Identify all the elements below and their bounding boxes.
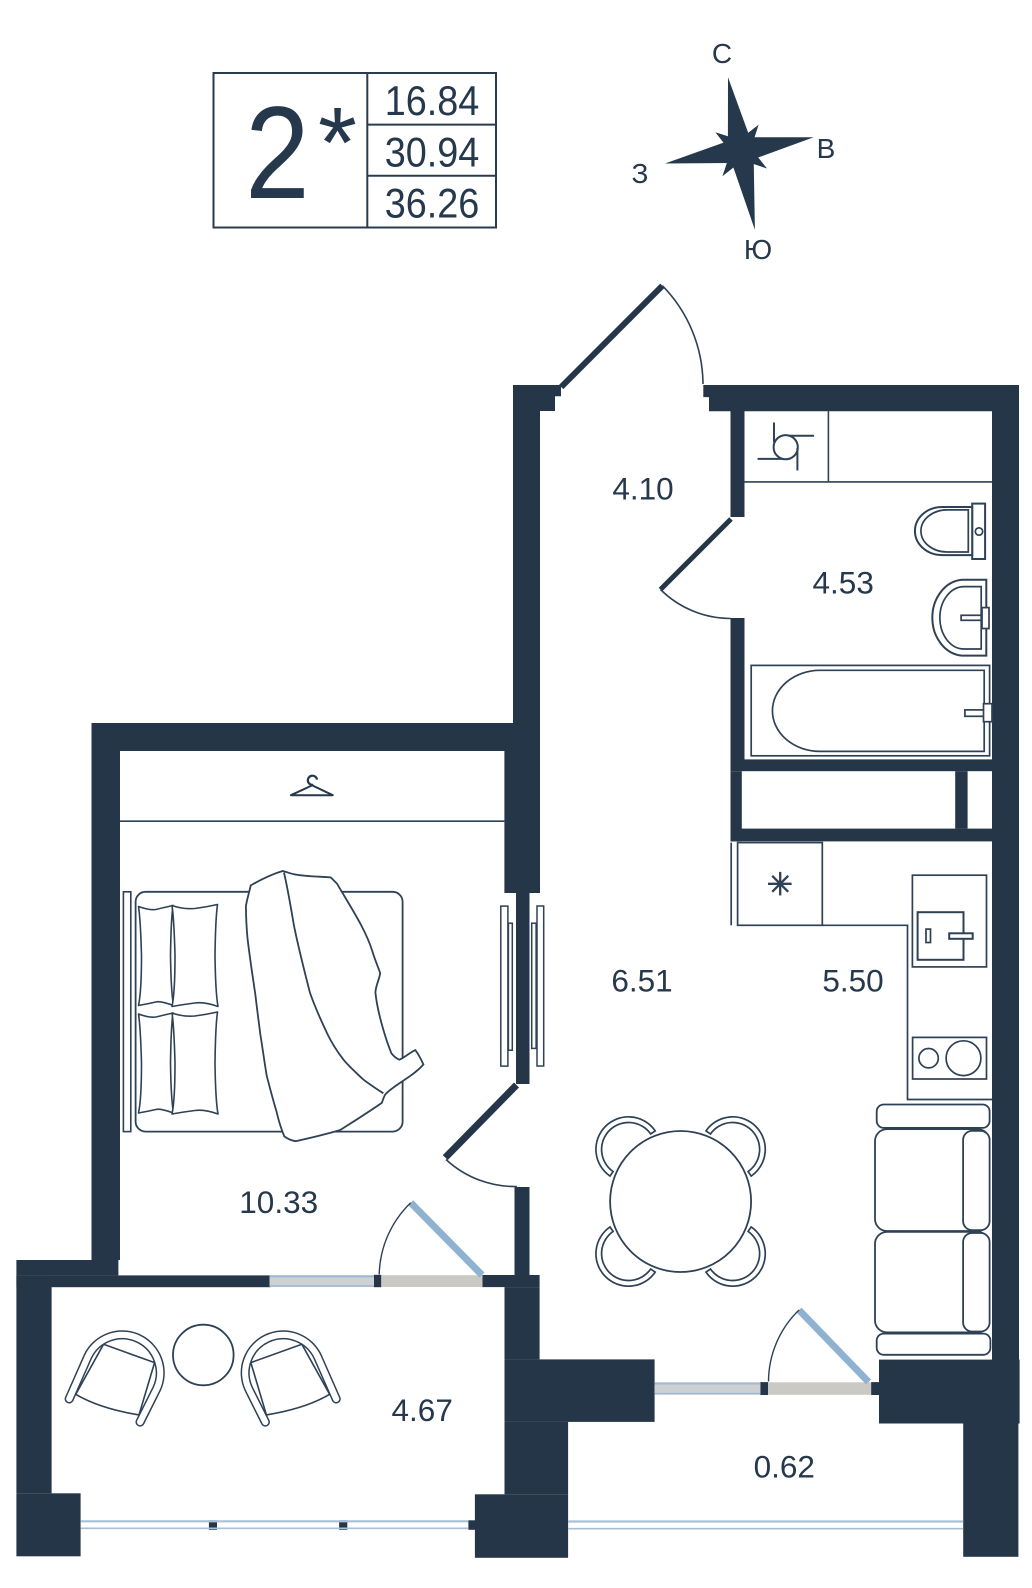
svg-text:0.62: 0.62: [754, 1449, 815, 1485]
svg-text:З: З: [632, 158, 649, 189]
svg-text:В: В: [817, 133, 836, 164]
svg-text:4.67: 4.67: [392, 1392, 453, 1428]
svg-text:*: *: [318, 87, 357, 199]
svg-text:Ю: Ю: [744, 234, 772, 265]
svg-text:16.84: 16.84: [385, 78, 480, 124]
svg-text:4.10: 4.10: [612, 471, 673, 507]
svg-text:36.26: 36.26: [385, 181, 480, 227]
svg-text:30.94: 30.94: [385, 130, 480, 176]
svg-text:4.53: 4.53: [813, 565, 874, 601]
svg-text:2: 2: [245, 80, 309, 227]
svg-text:С: С: [712, 38, 732, 69]
svg-text:6.51: 6.51: [611, 963, 672, 999]
svg-text:10.33: 10.33: [239, 1184, 318, 1220]
svg-text:5.50: 5.50: [822, 963, 883, 999]
